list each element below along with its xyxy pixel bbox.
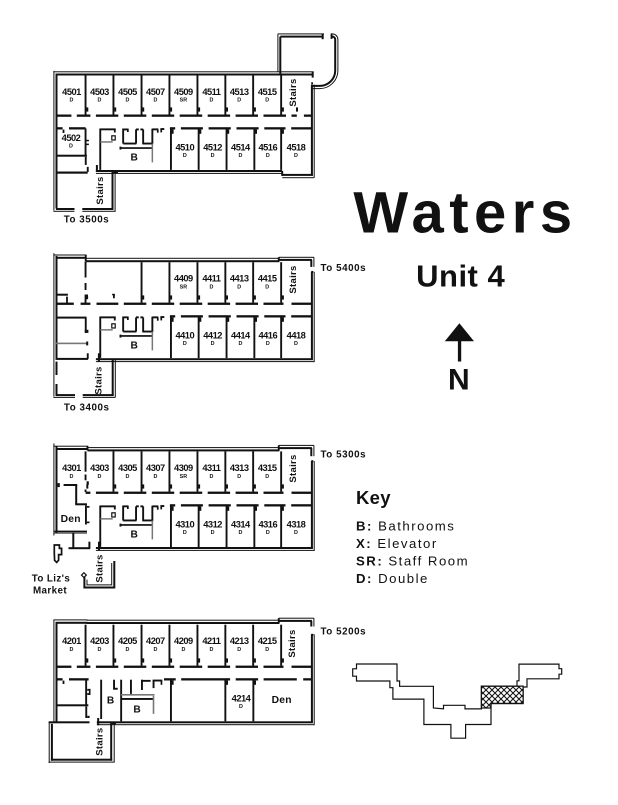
- svg-text:D: D: [265, 647, 269, 653]
- svg-text:D: D: [237, 284, 241, 290]
- svg-text:Stairs: Stairs: [288, 265, 299, 293]
- svg-text:D: D: [237, 474, 241, 480]
- svg-text:4314: 4314: [231, 520, 251, 530]
- svg-text:D: Double: D: Double: [356, 571, 429, 586]
- svg-text:B: Bathrooms: B: Bathrooms: [356, 519, 455, 534]
- svg-text:B: B: [133, 704, 140, 715]
- svg-text:D: D: [266, 341, 270, 347]
- svg-text:4416: 4416: [258, 331, 277, 341]
- svg-text:D: D: [183, 153, 187, 159]
- svg-text:To Liz's: To Liz's: [32, 573, 71, 584]
- svg-text:D: D: [265, 284, 269, 290]
- svg-text:SR: SR: [180, 284, 188, 290]
- svg-text:Stairs: Stairs: [288, 78, 299, 106]
- svg-text:B: B: [131, 152, 138, 163]
- svg-text:D: D: [209, 98, 213, 104]
- svg-text:D: D: [70, 98, 74, 104]
- svg-text:D: D: [209, 647, 213, 653]
- svg-text:D: D: [98, 647, 102, 653]
- svg-text:4512: 4512: [203, 143, 222, 153]
- svg-text:D: D: [238, 341, 242, 347]
- svg-text:4213: 4213: [230, 636, 249, 646]
- svg-text:4515: 4515: [258, 87, 277, 97]
- svg-text:4510: 4510: [175, 143, 194, 153]
- svg-text:4207: 4207: [146, 636, 165, 646]
- svg-text:D: D: [294, 530, 298, 536]
- svg-text:N: N: [448, 364, 470, 397]
- svg-text:4415: 4415: [258, 274, 277, 284]
- svg-text:4418: 4418: [287, 331, 306, 341]
- svg-text:4409: 4409: [174, 274, 193, 284]
- svg-text:To 5200s: To 5200s: [321, 626, 367, 637]
- svg-text:D: D: [211, 341, 215, 347]
- svg-text:D: D: [153, 98, 157, 104]
- svg-text:B: B: [131, 529, 138, 540]
- svg-text:4307: 4307: [146, 463, 165, 473]
- svg-text:4209: 4209: [174, 636, 193, 646]
- svg-text:4509: 4509: [174, 87, 193, 97]
- svg-text:4516: 4516: [258, 143, 277, 153]
- svg-text:4413: 4413: [230, 274, 249, 284]
- svg-text:D: D: [238, 153, 242, 159]
- svg-text:4313: 4313: [230, 463, 249, 473]
- svg-text:Stairs: Stairs: [95, 727, 106, 755]
- svg-text:To 3400s: To 3400s: [64, 402, 110, 413]
- svg-text:4201: 4201: [62, 636, 81, 646]
- svg-text:4507: 4507: [146, 87, 165, 97]
- svg-text:D: D: [98, 474, 102, 480]
- svg-text:4315: 4315: [258, 463, 277, 473]
- svg-text:4205: 4205: [118, 636, 137, 646]
- svg-text:4410: 4410: [175, 331, 194, 341]
- svg-text:4513: 4513: [230, 87, 249, 97]
- svg-text:4514: 4514: [231, 143, 251, 153]
- svg-text:Stairs: Stairs: [94, 366, 105, 394]
- svg-text:D: D: [183, 341, 187, 347]
- svg-text:D: D: [237, 647, 241, 653]
- svg-text:4310: 4310: [175, 520, 194, 530]
- svg-text:Stairs: Stairs: [94, 554, 105, 582]
- svg-text:D: D: [153, 474, 157, 480]
- svg-text:SR: SR: [180, 474, 188, 480]
- svg-text:4412: 4412: [203, 331, 222, 341]
- svg-text:4316: 4316: [258, 520, 277, 530]
- svg-text:4518: 4518: [287, 143, 306, 153]
- svg-text:D: D: [266, 153, 270, 159]
- svg-text:Key: Key: [356, 487, 391, 508]
- svg-text:B: B: [131, 340, 138, 351]
- svg-text:Unit 4: Unit 4: [416, 259, 505, 294]
- svg-text:4203: 4203: [90, 636, 109, 646]
- svg-text:4305: 4305: [118, 463, 137, 473]
- svg-text:D: D: [211, 153, 215, 159]
- svg-text:4505: 4505: [118, 87, 137, 97]
- svg-text:4502: 4502: [62, 133, 81, 143]
- svg-text:Market: Market: [33, 585, 67, 596]
- svg-text:D: D: [211, 530, 215, 536]
- svg-text:D: D: [153, 647, 157, 653]
- svg-text:D: D: [126, 647, 130, 653]
- svg-text:4511: 4511: [202, 87, 220, 97]
- svg-text:4211: 4211: [202, 636, 220, 646]
- svg-text:SR: SR: [180, 98, 188, 104]
- svg-text:Stairs: Stairs: [288, 454, 299, 482]
- svg-text:4214: 4214: [232, 694, 252, 704]
- svg-text:D: D: [237, 98, 241, 104]
- svg-text:B: B: [107, 695, 114, 706]
- svg-text:Den: Den: [272, 695, 292, 706]
- svg-text:Den: Den: [61, 514, 81, 525]
- svg-text:X: Elevator: X: Elevator: [356, 536, 438, 551]
- svg-text:D: D: [238, 530, 242, 536]
- svg-text:To 3500s: To 3500s: [64, 215, 110, 226]
- svg-text:4303: 4303: [90, 463, 109, 473]
- svg-text:D: D: [239, 704, 243, 710]
- svg-text:D: D: [266, 530, 270, 536]
- svg-text:D: D: [69, 144, 73, 150]
- svg-text:D: D: [181, 647, 185, 653]
- svg-text:SR: Staff Room: SR: Staff Room: [356, 554, 469, 569]
- svg-text:D: D: [265, 98, 269, 104]
- svg-text:D: D: [126, 98, 130, 104]
- svg-text:D: D: [265, 474, 269, 480]
- svg-text:To 5400s: To 5400s: [321, 263, 367, 274]
- svg-text:D: D: [126, 474, 130, 480]
- svg-text:D: D: [70, 474, 74, 480]
- svg-text:4411: 4411: [202, 274, 220, 284]
- svg-text:4215: 4215: [258, 636, 277, 646]
- svg-text:4312: 4312: [203, 520, 222, 530]
- svg-text:4311: 4311: [202, 463, 220, 473]
- svg-text:To 5300s: To 5300s: [321, 450, 367, 461]
- svg-text:Stairs: Stairs: [287, 629, 298, 657]
- svg-text:4501: 4501: [62, 87, 81, 97]
- svg-text:4309: 4309: [174, 463, 193, 473]
- svg-text:4503: 4503: [90, 87, 109, 97]
- svg-text:D: D: [70, 647, 74, 653]
- svg-text:4414: 4414: [231, 331, 251, 341]
- svg-text:D: D: [98, 98, 102, 104]
- svg-text:Waters: Waters: [353, 181, 577, 246]
- svg-text:Stairs: Stairs: [95, 176, 106, 204]
- svg-text:D: D: [294, 341, 298, 347]
- svg-text:D: D: [294, 153, 298, 159]
- svg-text:4301: 4301: [62, 463, 81, 473]
- svg-text:D: D: [209, 284, 213, 290]
- svg-text:4318: 4318: [287, 520, 306, 530]
- svg-text:D: D: [209, 474, 213, 480]
- svg-text:D: D: [183, 530, 187, 536]
